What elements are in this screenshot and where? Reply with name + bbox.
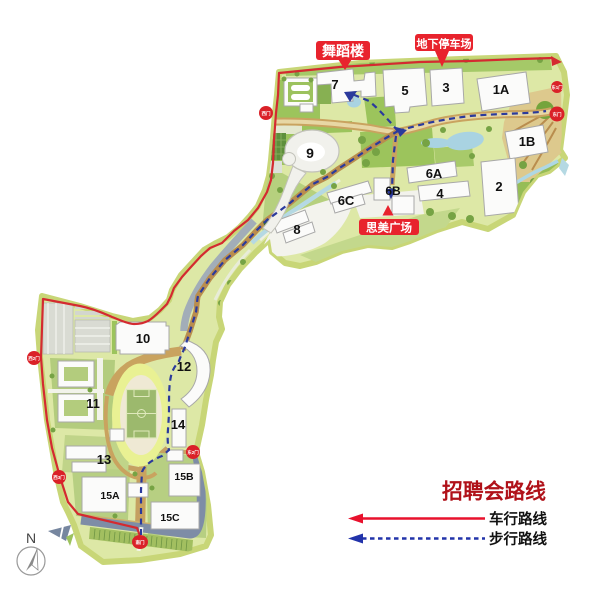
svg-text:15C: 15C	[160, 512, 180, 524]
svg-text:8: 8	[293, 222, 300, 237]
svg-text:15A: 15A	[100, 490, 120, 502]
svg-text:招聘会路线: 招聘会路线	[442, 480, 546, 504]
svg-text:9: 9	[306, 145, 314, 161]
svg-text:6A: 6A	[426, 166, 443, 181]
svg-text:西门: 西门	[262, 110, 271, 117]
svg-text:东门: 东门	[553, 111, 562, 118]
svg-text:15B: 15B	[174, 471, 194, 483]
svg-text:车行路线: 车行路线	[489, 510, 547, 528]
svg-text:12: 12	[177, 359, 191, 374]
svg-text:舞蹈楼: 舞蹈楼	[322, 43, 364, 59]
svg-text:西2门: 西2门	[28, 355, 40, 362]
svg-text:1A: 1A	[493, 82, 510, 97]
svg-text:思美广场: 思美广场	[366, 221, 412, 235]
svg-text:步行路线: 步行路线	[489, 530, 547, 548]
svg-text:13: 13	[97, 452, 111, 467]
svg-text:西3门: 西3门	[53, 474, 65, 481]
svg-text:5: 5	[401, 83, 408, 98]
svg-text:4: 4	[436, 186, 444, 201]
svg-text:东2门: 东2门	[187, 449, 199, 456]
svg-text:N: N	[26, 530, 36, 546]
svg-text:11: 11	[86, 396, 100, 411]
svg-text:14: 14	[171, 417, 186, 432]
svg-text:6B: 6B	[385, 184, 401, 198]
svg-text:1B: 1B	[519, 134, 536, 149]
svg-text:3: 3	[442, 80, 449, 95]
svg-text:东1门: 东1门	[551, 84, 563, 91]
svg-text:2: 2	[495, 179, 502, 194]
svg-text:6C: 6C	[338, 193, 355, 208]
svg-text:10: 10	[136, 331, 150, 346]
svg-text:地下停车场: 地下停车场	[417, 37, 472, 51]
svg-text:7: 7	[331, 77, 338, 92]
svg-text:南门: 南门	[136, 539, 145, 546]
